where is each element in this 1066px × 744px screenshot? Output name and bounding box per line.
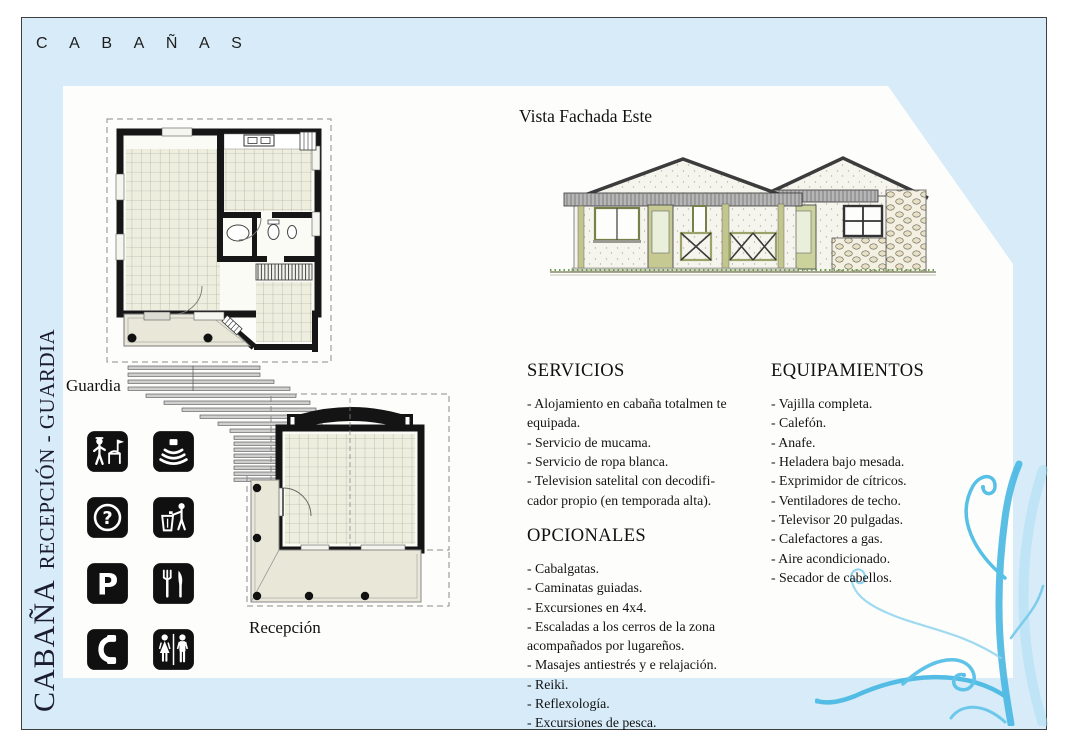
list-item: - Secador de cabellos. — [771, 568, 989, 587]
parking-glyph: P — [97, 567, 118, 601]
list-item: - Televisor 20 pulgadas. — [771, 510, 989, 529]
right-text-column: EQUIPAMIENTOS - Vajilla completa.- Calef… — [771, 361, 989, 587]
list-item: - Calefactores a gas. — [771, 529, 989, 548]
list-item: - Reflexología. — [527, 694, 733, 713]
question-glyph: ? — [102, 509, 112, 529]
list-item: - Cabalgatas. — [527, 559, 733, 578]
list-item: - Servicio de mucama. — [527, 433, 733, 452]
side-label-sub: RECEPCIÓN - GUARDIA — [35, 329, 59, 570]
guardia-kitchen — [224, 149, 312, 211]
information-icon: ? — [86, 496, 129, 539]
list-item: - Excursiones en 4x4. — [527, 598, 733, 617]
equipamientos-list: - Vajilla completa.- Calefón.- Anafe.- H… — [771, 394, 989, 587]
porch-column — [204, 334, 213, 343]
stone-wall-lower — [832, 238, 886, 272]
side-vertical-label: CABAÑARECEPCIÓN - GUARDIA — [28, 329, 62, 712]
list-item: - Anafe. — [771, 433, 989, 452]
facade-left-building — [564, 159, 802, 272]
list-item: - Ventiladores de techo. — [771, 491, 989, 510]
pictogram-grid: ? P — [86, 430, 195, 671]
litter-disposal-icon — [152, 496, 195, 539]
guardia-label: Guardia — [66, 376, 121, 396]
porch-column — [128, 334, 137, 343]
narrow-window — [693, 206, 706, 233]
list-item: - Calefón. — [771, 413, 989, 432]
equipamientos-heading: EQUIPAMIENTOS — [771, 361, 989, 382]
porch-post — [578, 206, 584, 270]
toilet — [268, 225, 279, 240]
list-item: - Alojamiento en cabaña totalmen te equi… — [527, 394, 733, 433]
servicios-list: - Alojamiento en cabaña totalmen te equi… — [527, 394, 733, 510]
list-item: - Vajilla completa. — [771, 394, 989, 413]
restrooms-icon — [152, 628, 195, 671]
opcionales-heading: OPCIONALES — [527, 526, 733, 547]
left-text-column: SERVICIOS - Alojamiento en cabaña totalm… — [527, 361, 733, 733]
guardia-main-room — [126, 149, 220, 310]
restaurant-icon — [152, 562, 195, 605]
facade-caption: Vista Fachada Este — [519, 106, 652, 127]
parking-icon: P — [86, 562, 129, 605]
list-item: - Masajes antiestrés y e relajación. — [527, 655, 733, 674]
list-item: - Exprimidor de cítricos. — [771, 471, 989, 490]
list-item: - Escaladas a los cerros de la zona acom… — [527, 617, 733, 656]
porch-post — [722, 204, 729, 270]
kitchen-sink — [244, 135, 274, 146]
side-label-main: CABAÑA — [28, 579, 61, 712]
page-title: C A B A Ñ A S — [36, 35, 251, 53]
list-item: - Reiki. — [527, 675, 733, 694]
list-item: - Television satelital con decodifi-cado… — [527, 471, 733, 510]
striped-deck — [256, 264, 312, 280]
list-item: - Aire acondicionado. — [771, 549, 989, 568]
list-item: - Caminatas guiadas. — [527, 578, 733, 597]
list-item: - Heladera bajo mesada. — [771, 452, 989, 471]
east-facade-drawing — [538, 146, 948, 286]
reception-floor-plan — [243, 392, 458, 637]
list-item: - Servicio de ropa blanca. — [527, 452, 733, 471]
bidet — [288, 226, 297, 239]
porch-post — [778, 204, 784, 270]
sound-waves-icon — [152, 430, 195, 473]
stone-wall-upper — [886, 190, 926, 272]
guardia-right-room — [256, 282, 312, 342]
guardia-floor-plan — [104, 116, 336, 374]
telephone-icon — [86, 628, 129, 671]
servicios-heading: SERVICIOS — [527, 361, 733, 382]
list-item: - Excursiones de pesca. — [527, 713, 733, 732]
recepcion-label: Recepción — [249, 618, 321, 638]
guard-station-icon — [86, 430, 129, 473]
opcionales-list: - Cabalgatas.- Caminatas guiadas.- Excur… — [527, 559, 733, 733]
